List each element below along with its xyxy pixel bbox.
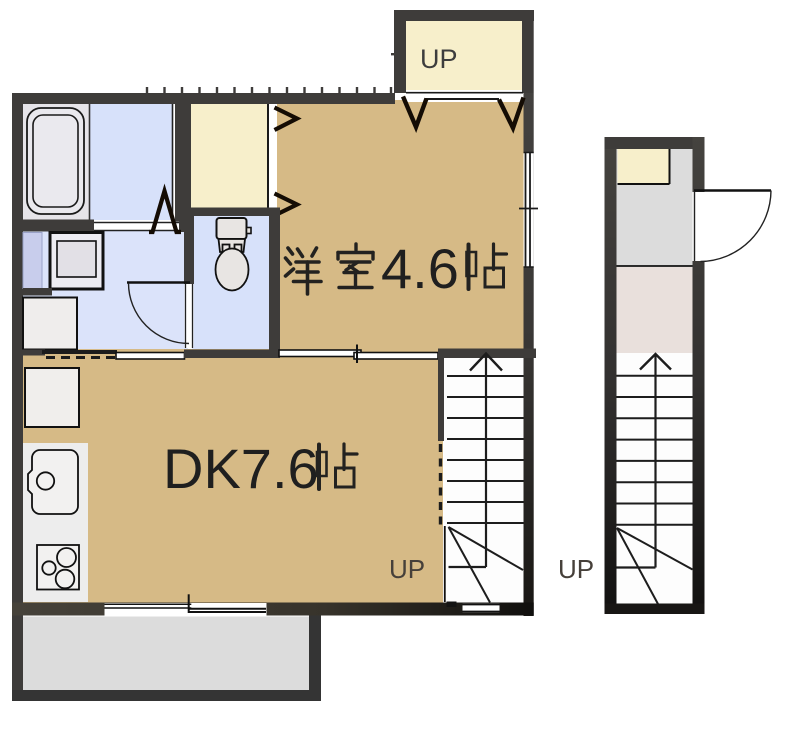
svg-text:4.6: 4.6 (381, 237, 459, 300)
svg-text:UP: UP (389, 554, 425, 584)
svg-text:UP: UP (558, 554, 594, 584)
svg-text:DK7.6: DK7.6 (163, 437, 319, 500)
svg-text:UP: UP (420, 44, 458, 74)
